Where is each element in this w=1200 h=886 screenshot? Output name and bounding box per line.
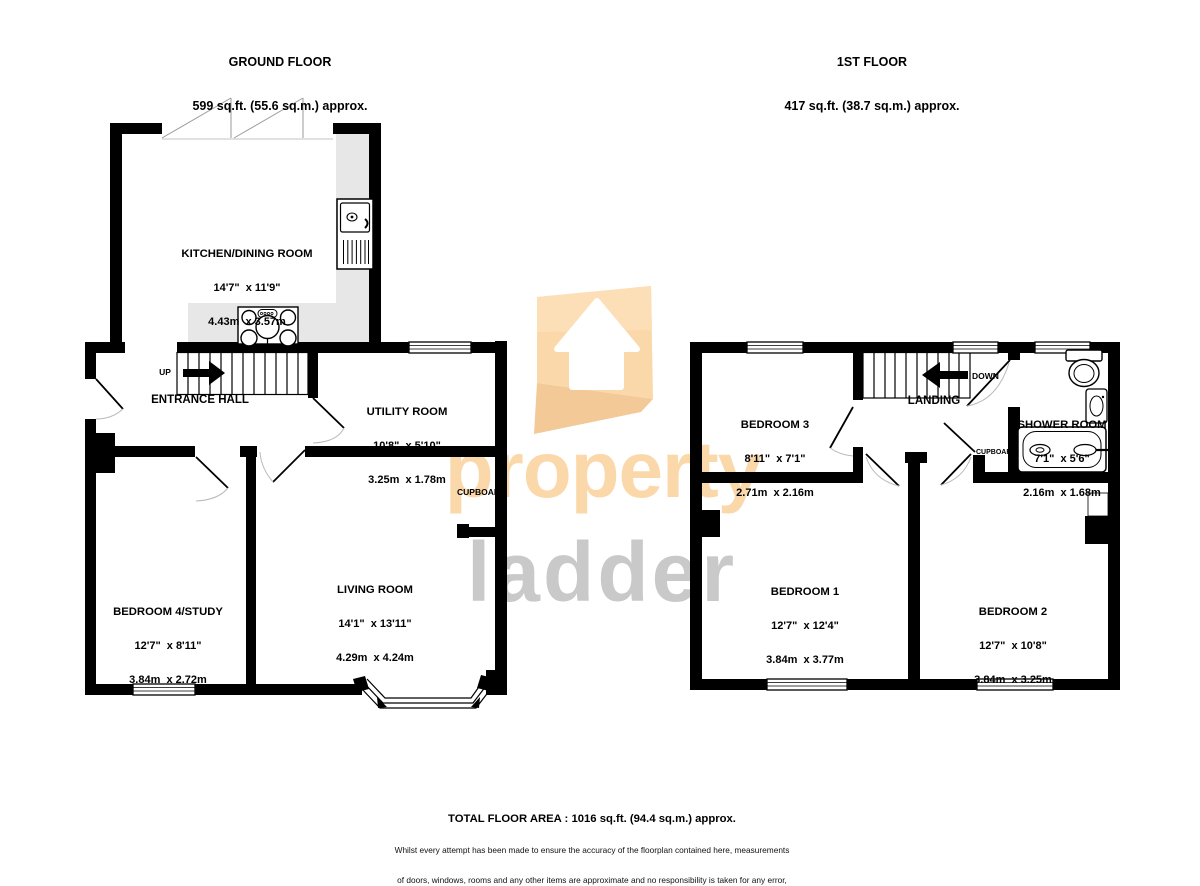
stairs-up-label: UP	[159, 367, 171, 377]
cupboard-label-first: CUPBOARD	[976, 449, 1010, 456]
ground-floor-title: GROUND FLOOR 599 sq.ft. (55.6 sq.m.) app…	[192, 26, 367, 142]
first-floor-title: 1ST FLOOR 417 sq.ft. (38.7 sq.m.) approx…	[784, 26, 959, 142]
room-label-bedroom4: BEDROOM 4/STUDY 12'7" x 8'11" 3.84m x 2.…	[113, 584, 223, 709]
stairs-down-label: DOWN	[972, 371, 999, 381]
ground-floor-title-name: GROUND FLOOR	[192, 55, 367, 70]
room-label-landing: LANDING	[908, 395, 960, 407]
disclaimer-line: of doors, windows, rooms and any other i…	[392, 876, 791, 886]
room-label-entrance-hall: ENTRANCE HALL	[151, 394, 249, 406]
floorplan-canvas: property ladder	[0, 0, 1200, 886]
labels: GROUND FLOOR 599 sq.ft. (55.6 sq.m.) app…	[0, 0, 1200, 886]
room-label-shower: SHOWER ROOM 7'1" x 5'6" 2.16m x 1.68m	[1017, 397, 1106, 522]
total-floor-area: TOTAL FLOOR AREA : 1016 sq.ft. (94.4 sq.…	[448, 813, 736, 825]
room-label-kitchen: KITCHEN/DINING ROOM 14'7" x 11'9" 4.43m …	[181, 226, 312, 351]
first-floor-title-area: 417 sq.ft. (38.7 sq.m.) approx.	[784, 99, 959, 114]
disclaimer-line: Whilst every attempt has been made to en…	[392, 846, 791, 856]
room-label-bedroom3: BEDROOM 3 8'11" x 7'1" 2.71m x 2.16m	[736, 397, 814, 522]
disclaimer: Whilst every attempt has been made to en…	[392, 827, 791, 886]
room-label-living: LIVING ROOM 14'1" x 13'11" 4.29m x 4.24m	[336, 562, 414, 687]
room-label-bedroom1: BEDROOM 1 12'7" x 12'4" 3.84m x 3.77m	[766, 564, 844, 689]
room-label-bedroom2: BEDROOM 2 12'7" x 10'8" 3.84m x 3.25m	[974, 584, 1052, 709]
room-label-utility: UTILITY ROOM 10'8" x 5'10" 3.25m x 1.78m	[367, 384, 448, 509]
ground-floor-title-area: 599 sq.ft. (55.6 sq.m.) approx.	[192, 99, 367, 114]
first-floor-title-name: 1ST FLOOR	[784, 55, 959, 70]
cupboard-label-ground: CUPBOARD	[457, 487, 496, 497]
